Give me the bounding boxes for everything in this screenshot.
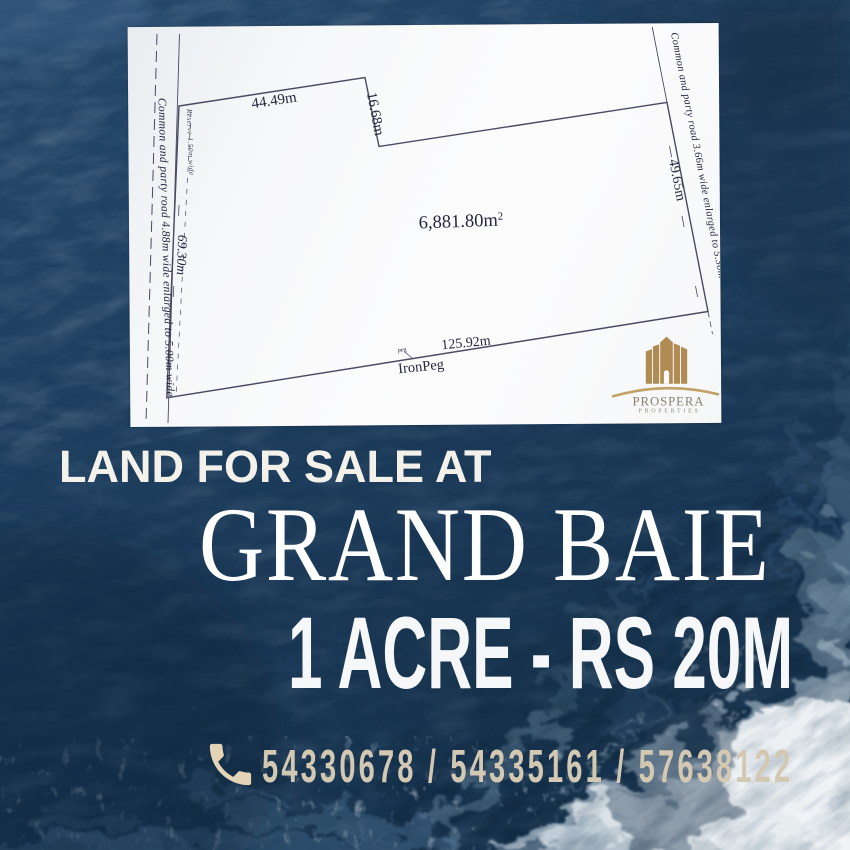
svg-text:16.68m: 16.68m bbox=[363, 91, 387, 138]
svg-text:69.30m: 69.30m bbox=[174, 235, 190, 276]
svg-text:IronPeg: IronPeg bbox=[397, 357, 444, 378]
svg-text:49.65m: 49.65m bbox=[665, 158, 688, 203]
svg-text:44.49m: 44.49m bbox=[250, 90, 298, 113]
svg-text:125.92m: 125.92m bbox=[441, 334, 492, 354]
svg-text:6,881.80m2: 6,881.80m2 bbox=[418, 211, 503, 234]
svg-text:PROPERTIES: PROPERTIES bbox=[639, 409, 701, 415]
svg-text:PROSPERA: PROSPERA bbox=[633, 395, 705, 409]
svg-text:Reserve 1.50m wide: Reserve 1.50m wide bbox=[185, 108, 195, 176]
svg-text:peg: peg bbox=[398, 347, 407, 354]
